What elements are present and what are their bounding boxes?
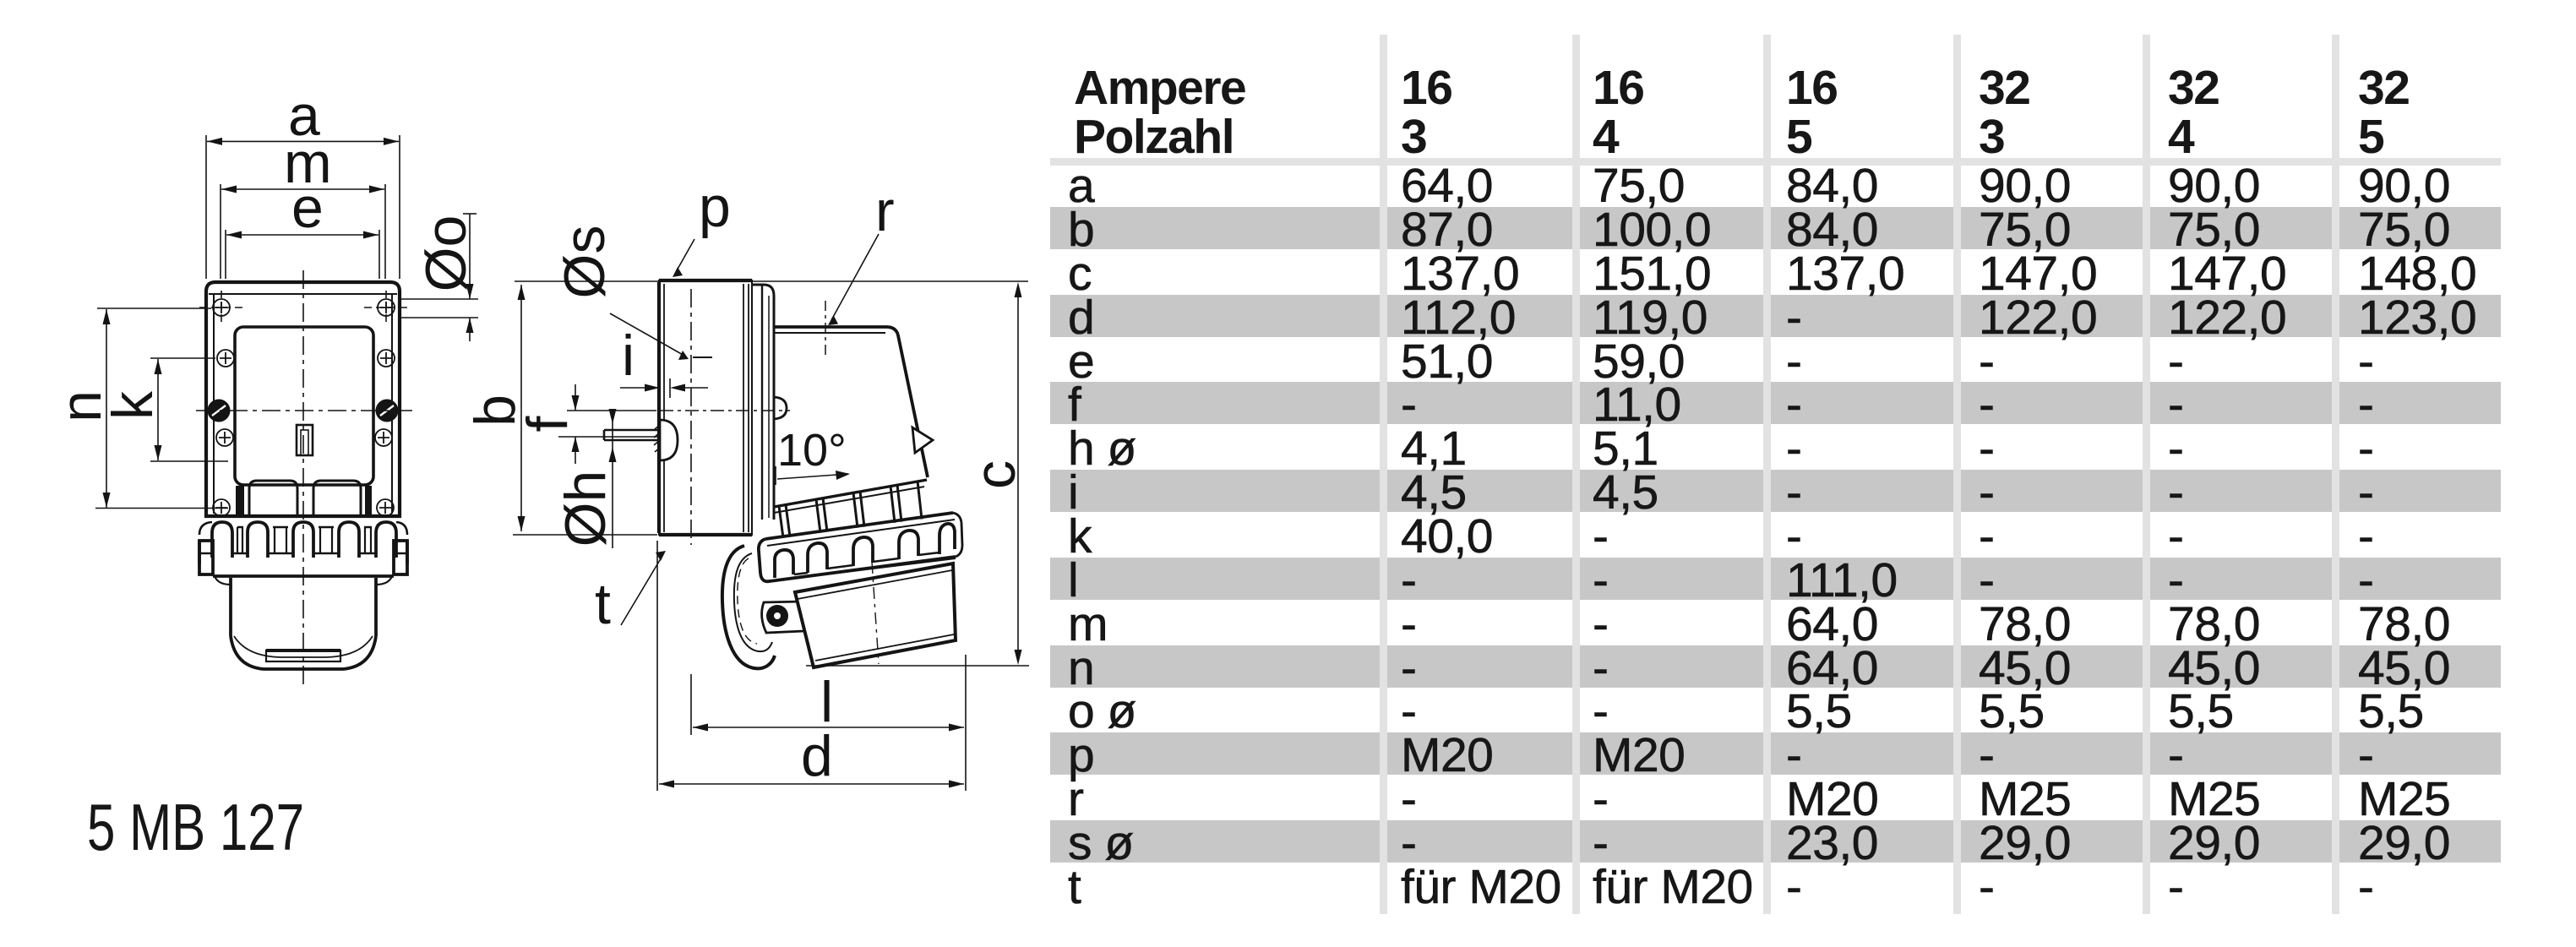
svg-text:d: d xyxy=(801,724,833,788)
svg-text:Øh: Øh xyxy=(553,471,618,547)
svg-text:p: p xyxy=(699,175,731,239)
svg-text:10°: 10° xyxy=(777,425,847,476)
svg-text:r: r xyxy=(875,179,895,243)
svg-text:k: k xyxy=(101,390,165,420)
svg-text:i: i xyxy=(622,324,634,388)
svg-text:e: e xyxy=(291,176,324,240)
svg-text:f: f xyxy=(515,416,580,432)
svg-text:t: t xyxy=(595,572,611,636)
svg-text:Øo: Øo xyxy=(414,215,478,292)
svg-text:c: c xyxy=(963,460,1027,489)
svg-text:Øs: Øs xyxy=(553,226,617,299)
